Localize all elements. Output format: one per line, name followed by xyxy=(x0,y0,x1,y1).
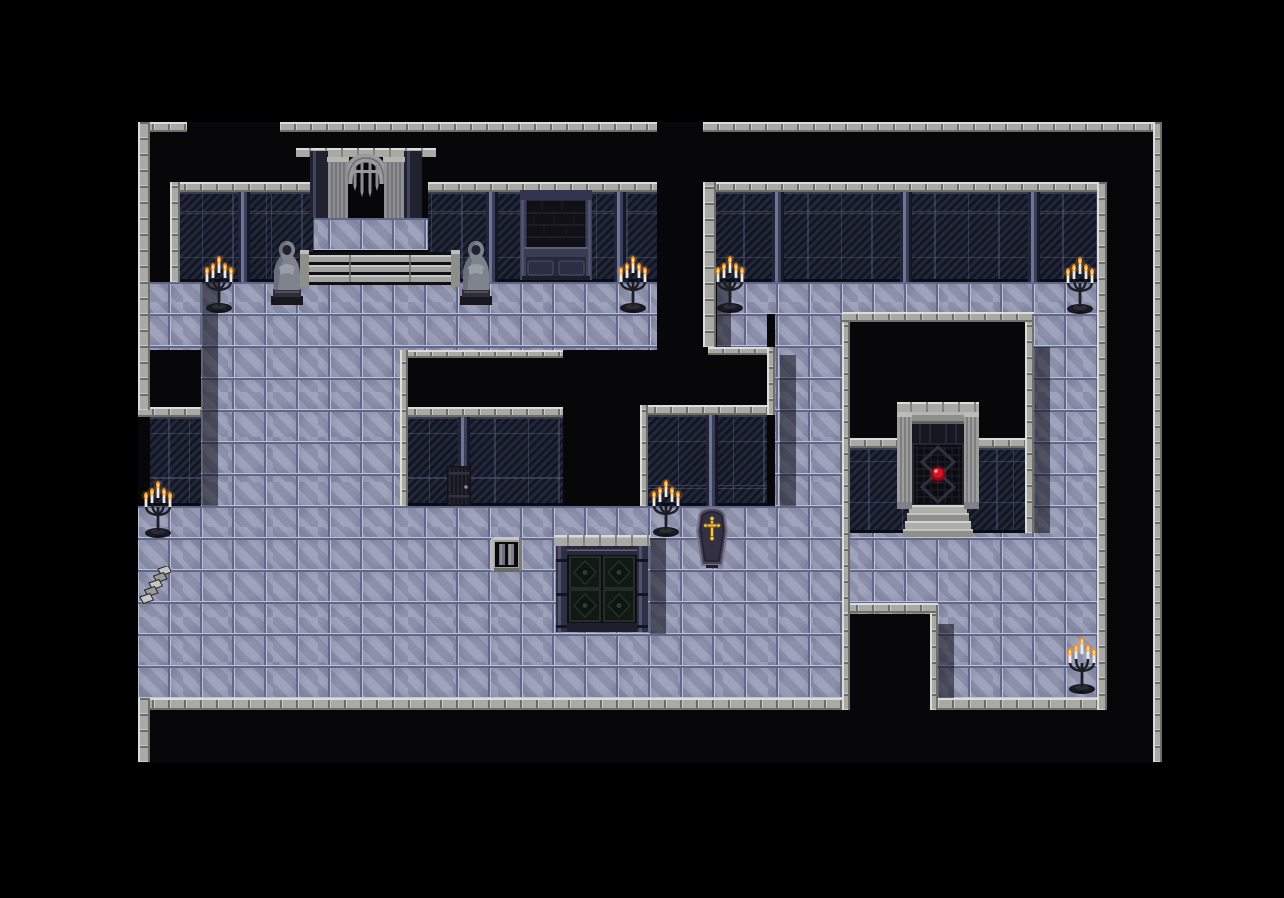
crypt-double-door[interactable]: espanol espanol espanol espanol xyxy=(554,535,650,634)
stone-trim xyxy=(938,698,1107,710)
stone-edge xyxy=(1153,122,1162,762)
floor-grate[interactable] xyxy=(491,537,522,571)
candelabra xyxy=(649,476,683,538)
stone-trim xyxy=(400,407,563,417)
cloaked-statue xyxy=(455,238,497,306)
floor-region xyxy=(850,533,1034,614)
candelabra xyxy=(141,477,175,539)
coffin-icon xyxy=(694,507,730,569)
stone-trim xyxy=(138,698,842,710)
stone-edge xyxy=(170,182,180,282)
stone-edge xyxy=(1025,322,1034,533)
candelabra xyxy=(1063,253,1097,315)
candelabra-icon xyxy=(1065,633,1099,695)
wall-panel xyxy=(400,417,563,506)
floor-region xyxy=(201,350,400,506)
wall-panel xyxy=(714,192,1097,282)
candelabra-icon xyxy=(141,477,175,539)
candelabra xyxy=(202,252,236,314)
stone-trim xyxy=(400,350,563,358)
stone-edge xyxy=(1097,182,1107,710)
portcullis-gate-icon xyxy=(296,148,436,218)
floor-region xyxy=(717,282,1097,314)
sealed-gate-red-orb[interactable] xyxy=(897,402,979,537)
stone-stairs[interactable] xyxy=(138,566,171,604)
shadow-strip xyxy=(202,282,218,506)
stone-edge xyxy=(767,347,775,415)
stone-trim xyxy=(842,603,938,613)
wall-window xyxy=(520,190,592,280)
shadow-strip xyxy=(780,355,796,506)
crypt-double-door-icon: espanol espanol espanol espanol xyxy=(554,535,650,634)
stone-edge xyxy=(138,698,150,762)
stone-stairs-icon xyxy=(138,566,171,604)
game-viewport: espanol espanol espanol espanol xyxy=(0,0,1284,898)
cloaked-statue-icon xyxy=(266,238,308,306)
candelabra-icon xyxy=(649,476,683,538)
stone-trim xyxy=(708,347,767,355)
cloaked-statue-icon xyxy=(455,238,497,306)
sealed-gate-red-orb-icon xyxy=(897,402,979,537)
stone-edge xyxy=(640,405,648,506)
candelabra xyxy=(1065,633,1099,695)
stone-railing xyxy=(300,250,460,287)
cloaked-statue xyxy=(266,238,308,306)
stone-edge xyxy=(842,613,850,710)
candelabra-icon xyxy=(1063,253,1097,315)
stone-trim xyxy=(280,122,657,132)
stone-trim xyxy=(842,312,1034,322)
stone-trim xyxy=(703,122,1153,132)
candelabra xyxy=(713,252,747,314)
coffin[interactable] xyxy=(694,507,730,569)
stone-edge xyxy=(138,122,150,410)
candelabra-icon xyxy=(616,252,650,314)
cell-door-icon xyxy=(447,466,471,506)
candelabra xyxy=(616,252,650,314)
stone-trim xyxy=(640,405,767,415)
floor-grate-icon xyxy=(491,537,522,571)
stone-edge xyxy=(842,322,850,613)
candelabra-icon xyxy=(713,252,747,314)
stone-edge xyxy=(930,613,938,710)
candelabra-icon xyxy=(202,252,236,314)
shadow-strip xyxy=(938,624,954,698)
wall-window-icon xyxy=(520,190,592,280)
stone-edge xyxy=(400,350,408,506)
shadow-strip xyxy=(650,538,666,634)
shadow-strip xyxy=(1034,347,1050,533)
portcullis-gate[interactable] xyxy=(296,148,436,218)
stone-trim xyxy=(170,182,313,192)
stone-railing-icon xyxy=(300,250,460,287)
stone-trim xyxy=(703,182,1107,192)
floor-region xyxy=(138,506,842,698)
cell-door[interactable] xyxy=(447,466,471,506)
